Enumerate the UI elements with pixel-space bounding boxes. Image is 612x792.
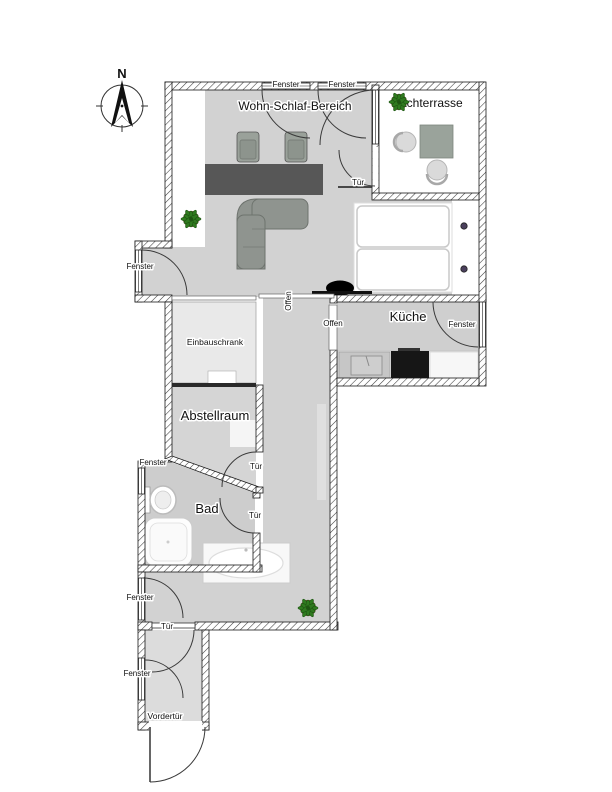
- window-symbol: [139, 658, 145, 700]
- wall-segment: [138, 565, 262, 572]
- open-label: Offen: [284, 291, 293, 310]
- countertop: [430, 352, 478, 379]
- wall-segment: [256, 385, 263, 452]
- wall-segment: [202, 630, 209, 730]
- door-label: Tür: [250, 462, 262, 471]
- wall-segment: [165, 82, 172, 248]
- terrace-table: [420, 125, 453, 158]
- door-leaf-hall: [152, 623, 195, 628]
- bathtub: [203, 543, 290, 583]
- wall-segment: [253, 493, 260, 498]
- mattress: [357, 206, 449, 247]
- door-label: Tür: [352, 178, 364, 187]
- floor-plan-drawing: N Fenster Fenster Wohn-Schlaf-Bereich Da…: [0, 0, 612, 792]
- kitchen-counter: [338, 348, 478, 380]
- bed-lamp: [461, 223, 467, 229]
- storage-shelf: [230, 420, 257, 447]
- room-label-kitchen: Küche: [390, 309, 427, 324]
- front-door-label: Vordertür: [148, 711, 183, 721]
- window-label: Fenster: [272, 80, 299, 89]
- desk: [205, 164, 323, 195]
- room-label-wardrobe: Einbauschrank: [187, 337, 244, 347]
- kitchen-sink: [339, 352, 390, 379]
- door-gap-front: [149, 721, 202, 731]
- window-label: Fenster: [126, 593, 153, 602]
- bed-lamp: [461, 266, 467, 272]
- window-symbol: [139, 468, 145, 494]
- compass-rose: N: [96, 66, 148, 132]
- wardrobe-drawer: [208, 371, 236, 384]
- wall-segment: [337, 295, 486, 302]
- open-label: Offen: [323, 319, 342, 328]
- terrace-chair: [427, 160, 447, 184]
- open-passage-marker: [259, 294, 334, 298]
- wardrobe-divider-wall: [172, 383, 256, 387]
- wall-segment: [165, 302, 172, 462]
- wall-segment: [372, 193, 479, 200]
- door-gap-terrace: [373, 147, 379, 187]
- wall-segment: [330, 350, 337, 630]
- window-symbol: [480, 302, 486, 347]
- window-label: Fenster: [126, 262, 153, 271]
- room-label-living: Wohn-Schlaf-Bereich: [238, 99, 351, 113]
- wall-segment: [253, 533, 260, 572]
- door-label: Tür: [161, 622, 173, 631]
- corridor-runner: [317, 404, 326, 500]
- door-label: Tür: [249, 511, 261, 520]
- window-label: Fenster: [123, 669, 150, 678]
- room-label-storage: Abstellraum: [181, 408, 250, 423]
- window-symbol: [373, 90, 379, 144]
- shower: [145, 518, 192, 566]
- compass-north-label: N: [117, 66, 126, 81]
- wardrobe-front-line: [172, 296, 256, 300]
- floor-bed-headboard-strip: [452, 198, 479, 297]
- desk-chair: [237, 132, 259, 162]
- wall-segment: [256, 487, 263, 493]
- window-label: Fenster: [139, 458, 166, 467]
- floor-plan-page: N Fenster Fenster Wohn-Schlaf-Bereich Da…: [0, 0, 612, 792]
- floor-entry-hall: [145, 630, 202, 722]
- room-label-bath: Bad: [195, 501, 218, 516]
- toilet: [141, 486, 176, 514]
- wall-segment: [135, 295, 172, 302]
- window-label: Fenster: [448, 320, 475, 329]
- window-symbol: [136, 250, 142, 292]
- wall-segment: [195, 622, 338, 630]
- terrace-chair: [394, 132, 416, 152]
- mattress: [357, 249, 449, 290]
- wall-segment: [138, 622, 152, 630]
- double-bed: [354, 203, 467, 292]
- window-label: Fenster: [328, 80, 355, 89]
- wall-segment: [337, 378, 479, 386]
- stove: [391, 348, 429, 380]
- door-swing-arc: [150, 727, 205, 782]
